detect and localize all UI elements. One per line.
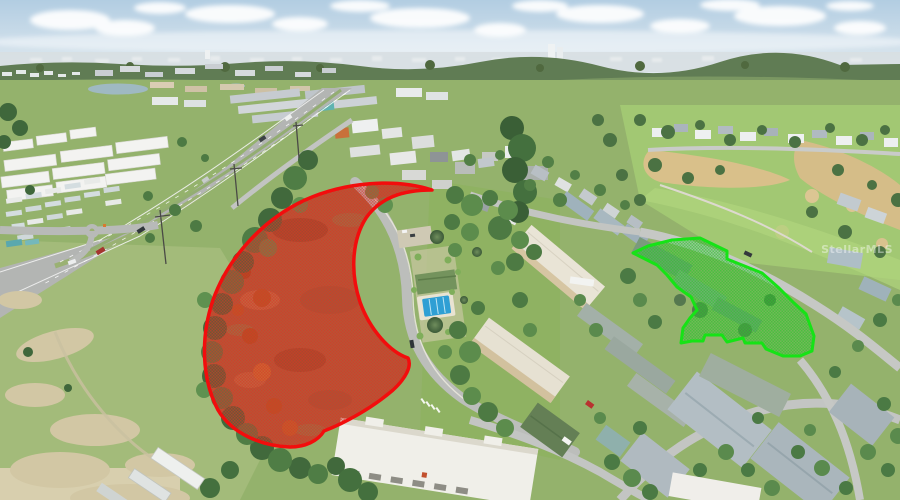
aerial-photo: StellarMLS [0, 0, 900, 500]
aerial-photo-canvas: StellarMLS [0, 0, 900, 500]
road-sign [103, 224, 106, 227]
gazebo [472, 247, 482, 257]
gazebo [430, 230, 444, 244]
gazebo [427, 317, 443, 333]
swimming-pool [417, 292, 456, 321]
stellar-mls-watermark: StellarMLS [821, 243, 893, 256]
